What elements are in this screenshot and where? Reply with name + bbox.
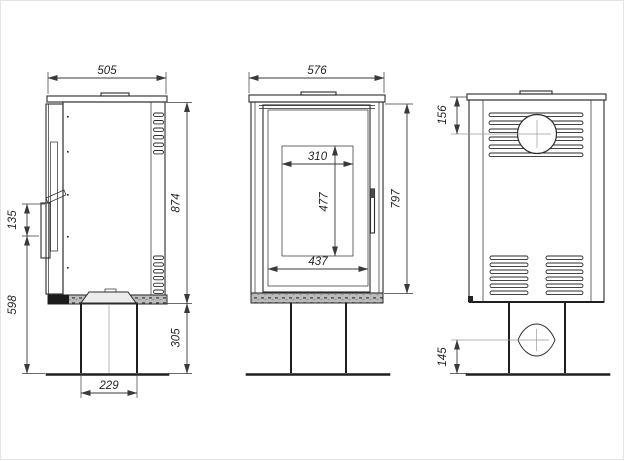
rivet-dot xyxy=(67,267,69,269)
vent-slot xyxy=(154,283,164,286)
front-base-plate xyxy=(251,293,383,303)
vent-slot xyxy=(154,121,164,124)
dim-label-598: 598 xyxy=(7,295,19,315)
dim-side-pedestal-height-305: 305 xyxy=(168,304,192,374)
vent-slot xyxy=(154,113,164,116)
vent-slot xyxy=(546,277,583,281)
vent-slot xyxy=(154,276,164,279)
vent-slot xyxy=(154,270,164,273)
dim-label-874: 874 xyxy=(171,193,183,212)
vent-slot xyxy=(154,143,164,146)
vent-slot xyxy=(154,256,164,259)
dim-front-glass-width-310: 310 xyxy=(282,151,353,164)
dim-side-width-505: 505 xyxy=(48,65,166,94)
side-upper-vent-slots xyxy=(154,113,164,154)
vent-slot xyxy=(490,284,528,288)
rivet-dot xyxy=(67,236,69,238)
front-top-plate xyxy=(249,95,385,102)
vent-slot xyxy=(154,263,164,266)
back-lower-vent-slots xyxy=(490,256,583,295)
side-glass-edge xyxy=(51,142,58,251)
dim-front-door-width-437: 437 xyxy=(268,256,368,269)
front-door-latch xyxy=(371,189,375,198)
rivet-dot xyxy=(67,116,69,118)
front-view: 576 797 310 477 437 xyxy=(247,65,413,375)
back-base-notch xyxy=(468,296,473,302)
dim-label-797: 797 xyxy=(391,189,403,209)
dim-back-flue-156: 156 xyxy=(437,97,467,134)
technical-drawing-page: 505 874 305 135 598 xyxy=(0,0,624,460)
side-pedestal-cap xyxy=(81,292,136,303)
rivet-dot xyxy=(67,194,69,196)
dim-label-145: 145 xyxy=(437,347,449,367)
back-view: 156 145 xyxy=(437,91,609,375)
side-lower-vent-slots xyxy=(154,256,164,293)
vent-slot xyxy=(490,277,528,281)
dim-front-width-576: 576 xyxy=(249,65,384,93)
vent-slot xyxy=(490,256,528,260)
drawing-canvas: 505 874 305 135 598 xyxy=(1,1,624,461)
rivet-dot xyxy=(67,151,69,153)
dim-label-576: 576 xyxy=(307,65,327,77)
vent-slot xyxy=(154,128,164,131)
side-rivets xyxy=(67,116,69,269)
dim-label-156: 156 xyxy=(437,105,449,125)
vent-slot xyxy=(546,284,583,288)
vent-slot xyxy=(490,263,528,267)
dim-label-229: 229 xyxy=(98,380,119,392)
side-base-front-block xyxy=(48,295,69,304)
dim-label-437: 437 xyxy=(308,256,328,268)
dim-back-inlet-145: 145 xyxy=(437,340,467,374)
dim-side-height-874: 874 xyxy=(167,103,192,304)
vent-slot xyxy=(546,263,583,267)
dim-label-310: 310 xyxy=(308,151,328,163)
dim-label-505: 505 xyxy=(97,65,117,77)
side-body xyxy=(63,102,165,295)
vent-slot xyxy=(154,151,164,154)
vent-slot xyxy=(154,136,164,139)
back-top-plate xyxy=(467,94,606,100)
dim-side-handle-135: 135 xyxy=(7,204,45,236)
dim-label-305: 305 xyxy=(171,328,183,348)
dim-front-height-797: 797 xyxy=(384,104,413,294)
vent-slot xyxy=(490,291,528,295)
dim-label-135: 135 xyxy=(7,210,19,230)
side-view: 505 874 305 135 598 xyxy=(7,65,192,398)
vent-slot xyxy=(546,291,583,295)
vent-slot xyxy=(546,270,583,274)
dim-side-handle-to-floor-598: 598 xyxy=(7,236,45,374)
dim-label-477: 477 xyxy=(319,192,331,212)
side-top-plate xyxy=(47,96,167,102)
dim-side-pedestal-width-229: 229 xyxy=(81,376,137,398)
vent-slot xyxy=(154,290,164,293)
vent-slot xyxy=(490,270,528,274)
vent-slot xyxy=(546,256,583,260)
